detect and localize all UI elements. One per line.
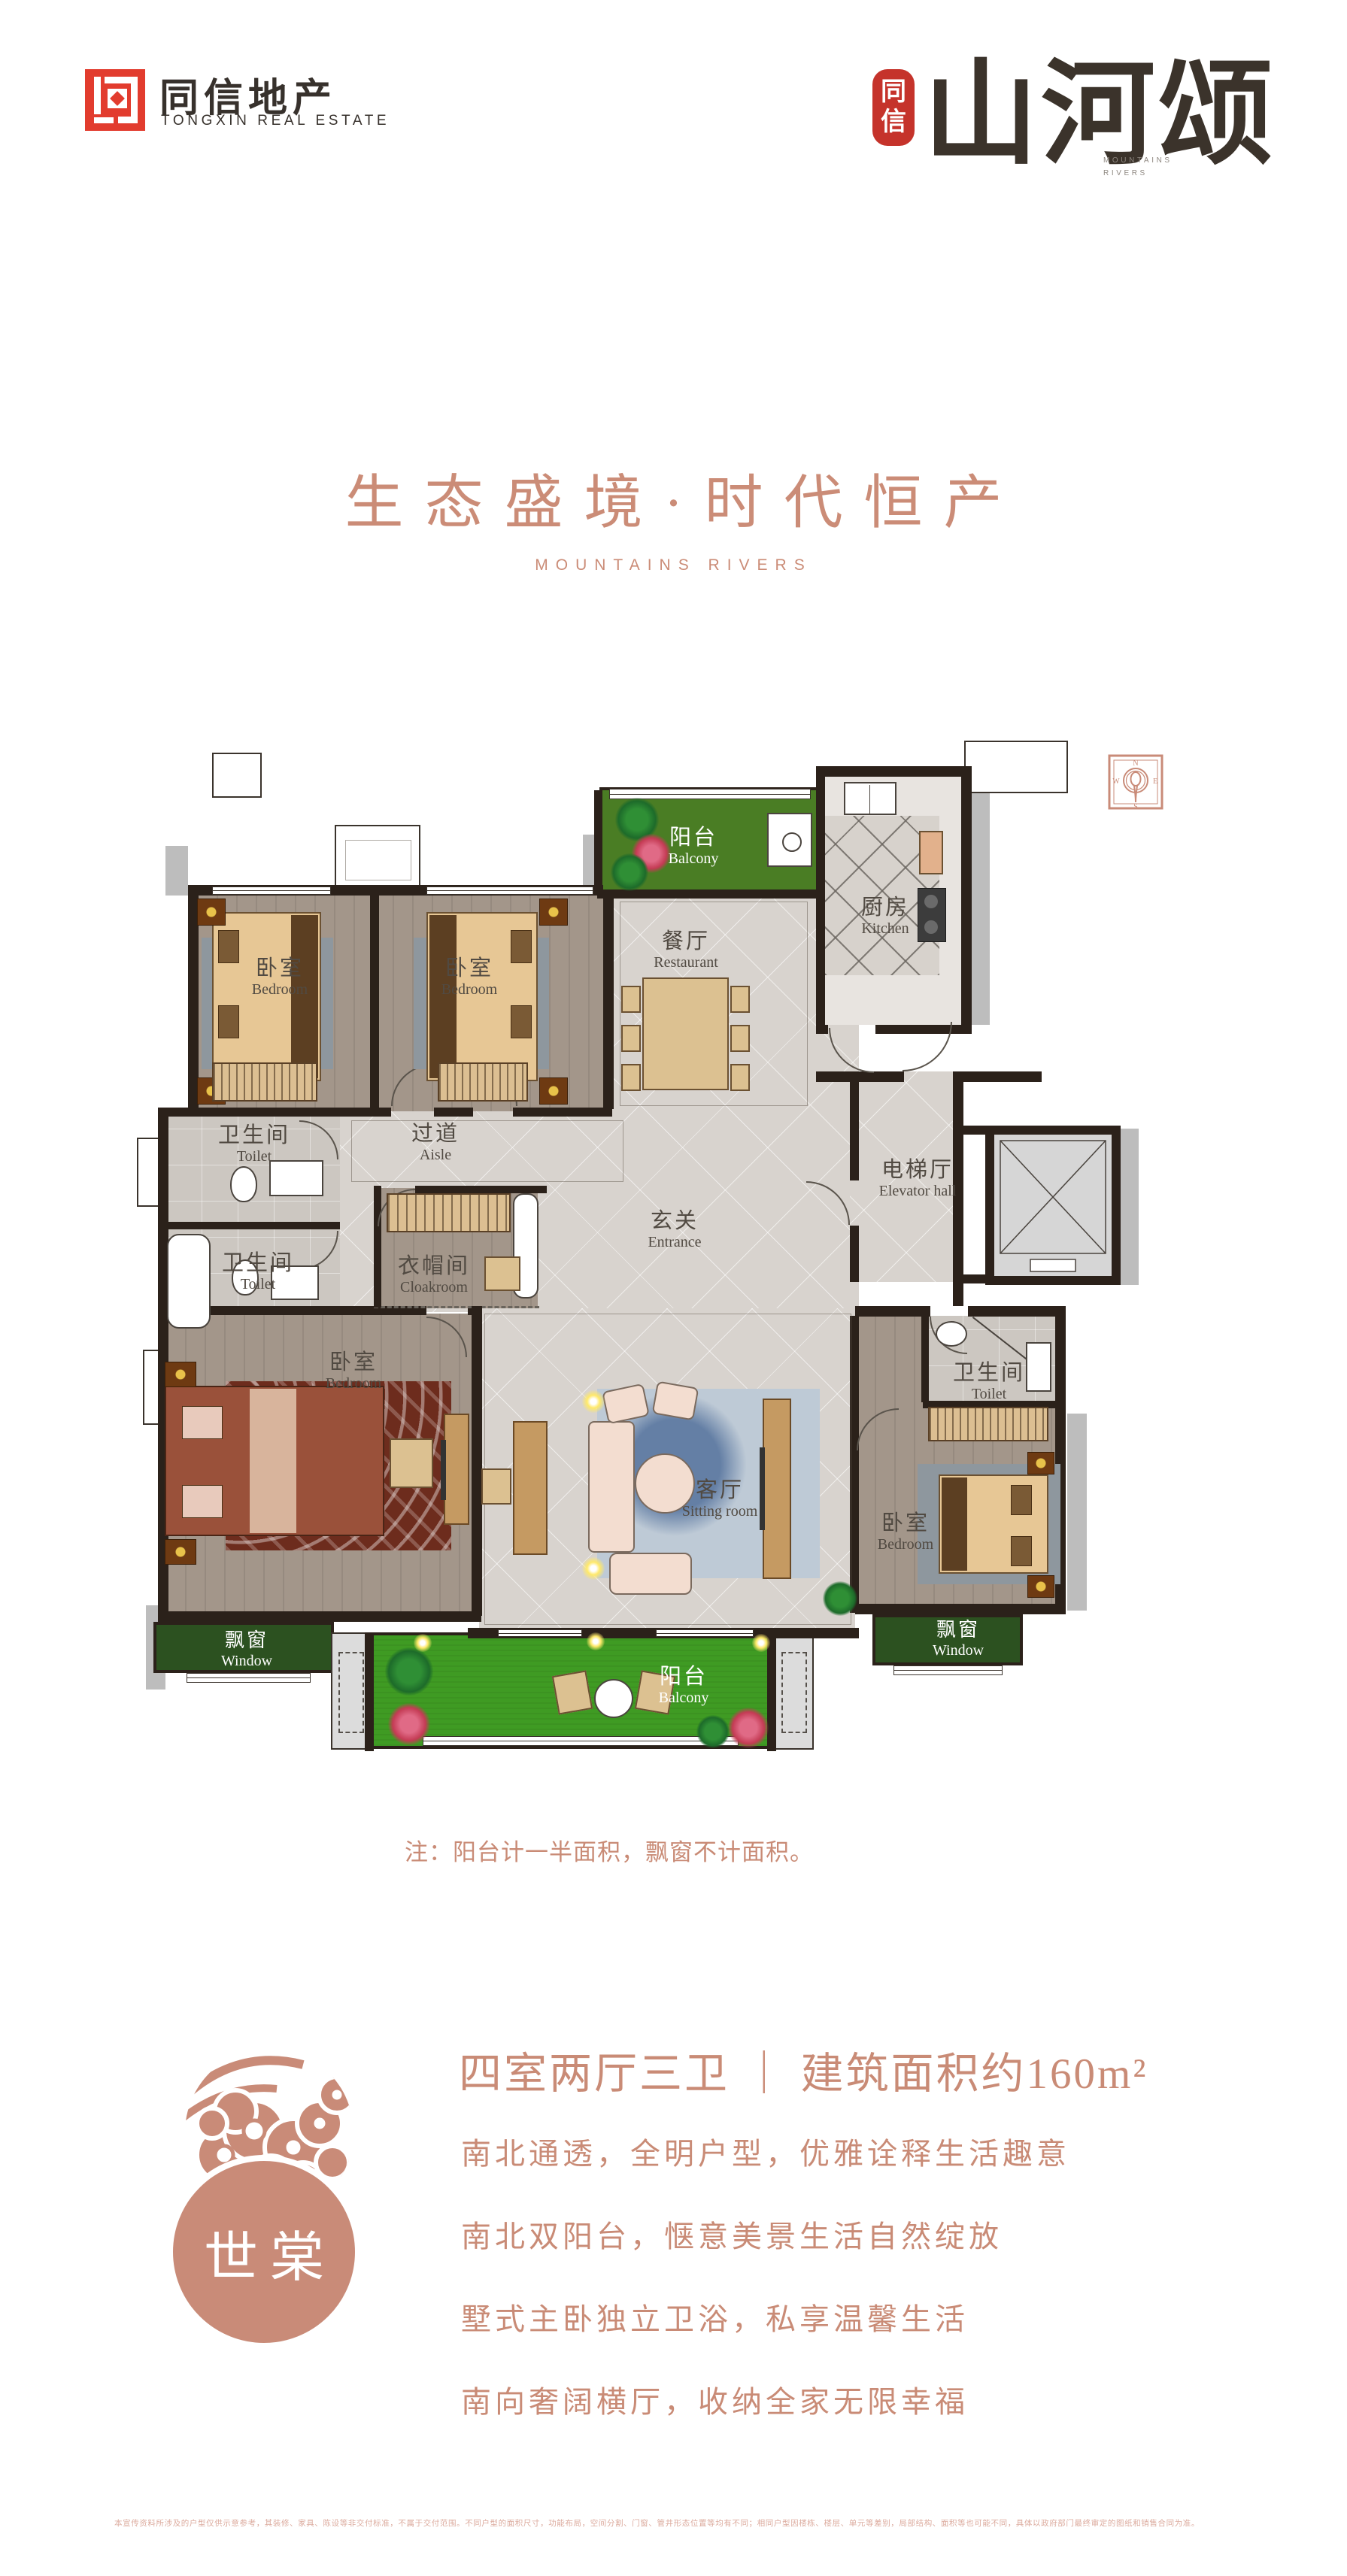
nightstand — [1027, 1452, 1054, 1474]
pillow — [182, 1485, 223, 1518]
feature-line: 墅式主卧独立卫浴，私享温馨生活 — [461, 2295, 1070, 2338]
plan-note: 注：阳台计一半面积，飘窗不计面积。 — [308, 1833, 910, 1867]
label-window-left: 飘窗 Window — [171, 1629, 322, 1670]
armchair — [652, 1380, 699, 1420]
tongxin-logo-icon — [85, 69, 145, 131]
project-calligraphy-logo: 山河颂 — [924, 21, 1276, 186]
wall — [594, 790, 602, 896]
wall-shadow — [1119, 1129, 1139, 1285]
toilet-bowl — [936, 1321, 967, 1347]
wall — [434, 1108, 473, 1117]
unit-features: 南北通透，全明户型，优雅诠释生活趣意 南北双阳台，惬意美景生活自然绽放 墅式主卧… — [461, 2129, 1070, 2460]
balcony-light — [587, 1632, 605, 1650]
label-toilet-2: 卫生间 Toilet — [183, 1250, 333, 1294]
label-toilet-1: 卫生间 Toilet — [179, 1123, 329, 1166]
wall — [472, 1306, 482, 1616]
wall — [968, 1306, 1066, 1317]
wall-shadow — [165, 846, 188, 896]
ac-platform — [772, 1632, 814, 1750]
bedroom-armchair — [390, 1438, 433, 1488]
disclaimer-text: 本宣传资料所涉及的户型仅供示意参考，其装修、家具、陈设等非交付标准，不属于交付范… — [114, 2517, 1200, 2529]
wall-shadow — [970, 772, 990, 1025]
svg-text:W: W — [1112, 777, 1120, 786]
chair — [621, 1064, 641, 1091]
nightstand — [539, 1077, 568, 1105]
brand-name-en: TONGXIN REAL ESTATE — [161, 113, 390, 129]
pillow — [1011, 1485, 1032, 1515]
cloak-rack — [387, 1193, 511, 1232]
pillow — [218, 1005, 239, 1038]
label-cloakroom: 衣帽间 Cloakroom — [359, 1253, 509, 1297]
stair-landing — [964, 741, 1068, 793]
poster-page: 同信地产 TONGXIN REAL ESTATE 同 信 山河颂 MOUNTAI… — [0, 0, 1347, 2576]
window-strip — [212, 886, 331, 895]
plant — [385, 1647, 433, 1696]
window-strip — [656, 1629, 754, 1637]
tv-console — [444, 1414, 469, 1525]
label-window-right: 飘窗 Window — [883, 1619, 1033, 1659]
pillow — [1011, 1536, 1032, 1566]
floor-lamp — [582, 1557, 605, 1580]
wall — [816, 766, 970, 777]
tv-screen — [441, 1440, 446, 1500]
page-subtitle: MOUNTAINS RIVERS — [0, 556, 1347, 574]
nightstand — [1027, 1575, 1054, 1598]
feature-line: 南北双阳台，惬意美景生活自然绽放 — [461, 2212, 1070, 2256]
desk-chair — [481, 1468, 511, 1505]
cutting-board — [919, 831, 943, 874]
window-strip — [498, 1629, 582, 1637]
nightstand — [165, 1539, 196, 1565]
dining-table — [642, 977, 729, 1090]
label-bedroom-1: 卧室 Bedroom — [205, 956, 355, 999]
project-logo-subtitle-line2: RIVERS — [1103, 167, 1173, 180]
elevator-shaft — [985, 1126, 1121, 1285]
label-entrance: 玄关 Entrance — [599, 1208, 750, 1252]
toilet-bowl — [230, 1166, 257, 1202]
unit-name-badge: 世棠 — [167, 2155, 361, 2349]
window-strip — [426, 886, 593, 895]
wall — [963, 1126, 986, 1135]
chair — [621, 1025, 641, 1052]
chair — [730, 986, 750, 1013]
label-balcony-bottom: 阳台 Balcony — [608, 1664, 759, 1708]
wardrobe — [928, 1407, 1048, 1441]
exterior-box — [212, 753, 262, 798]
wall — [816, 1071, 904, 1082]
wall — [855, 1306, 930, 1317]
label-sitting-room: 客厅 Sitting room — [645, 1477, 795, 1521]
wall — [188, 1108, 391, 1117]
nightstand — [165, 1362, 196, 1387]
window-strip — [187, 1673, 311, 1683]
svg-text:N: N — [1133, 759, 1138, 768]
label-kitchen: 厨房 Kitchen — [810, 895, 960, 938]
console-desk — [513, 1421, 548, 1555]
svg-text:E: E — [1153, 777, 1157, 786]
label-aisle: 过道 Aisle — [360, 1121, 511, 1165]
nightstand — [197, 899, 226, 926]
seal-char-bottom: 信 — [881, 108, 906, 138]
bay-window-frame — [345, 840, 411, 880]
washer-drum — [782, 832, 802, 852]
feature-line: 南向奢阔横厅，收纳全家无限幸福 — [461, 2377, 1070, 2421]
flower-plant — [728, 1708, 769, 1748]
wall — [767, 1632, 776, 1751]
wall — [953, 1071, 1042, 1082]
sink-divider — [869, 785, 870, 814]
label-bedroom-3: 卧室 Bedroom — [830, 1511, 981, 1554]
compass-icon: N E S W — [1107, 753, 1164, 811]
plant — [696, 1715, 730, 1748]
chair — [621, 986, 641, 1013]
floor-plan: 阳台 Balcony 厨房 Kitchen 餐厅 Restaurant 卧室 B… — [137, 741, 1220, 1772]
wardrobe — [438, 1062, 528, 1102]
sofa — [588, 1421, 635, 1553]
project-logo-subtitle: MOUNTAINS RIVERS — [1103, 154, 1173, 180]
wall — [415, 1186, 547, 1193]
flower-plant — [388, 1703, 430, 1745]
label-toilet-3: 卫生间 Toilet — [914, 1360, 1064, 1404]
pillow — [182, 1406, 223, 1439]
label-restaurant: 餐厅 Restaurant — [611, 929, 761, 972]
ac-unit — [338, 1652, 364, 1733]
unit-headline: 四室两厅三卫 ｜ 建筑面积约160m² — [459, 2039, 1148, 2101]
wardrobe — [212, 1062, 317, 1102]
balcony-light — [752, 1634, 770, 1652]
wall — [603, 889, 614, 1109]
svg-text:S: S — [1133, 803, 1138, 811]
window-strip — [423, 1736, 739, 1746]
balcony-light — [414, 1634, 432, 1652]
storage-dashed-line — [374, 1306, 539, 1308]
label-master-bedroom: 卧室 Bedroom — [278, 1350, 429, 1393]
kitchen-sink — [844, 782, 896, 815]
bed-runner — [250, 1389, 296, 1533]
brand-seal: 同 信 — [872, 69, 915, 146]
floor-lamp — [582, 1390, 605, 1413]
label-balcony-top: 阳台 Balcony — [618, 825, 769, 868]
wall — [961, 766, 972, 1034]
plant — [823, 1581, 857, 1616]
wall — [850, 1226, 859, 1282]
chair — [730, 1064, 750, 1091]
page-title: 生态盛境·时代恒产 — [0, 456, 1347, 540]
wall — [963, 1274, 986, 1283]
washing-machine — [767, 813, 812, 867]
ac-unit — [781, 1652, 807, 1733]
loveseat — [609, 1553, 692, 1595]
wall — [855, 1604, 1066, 1614]
pillow — [511, 1005, 532, 1038]
seal-char-top: 同 — [881, 77, 906, 108]
label-bedroom-2: 卧室 Bedroom — [394, 956, 545, 999]
wall — [158, 1611, 481, 1622]
project-logo-subtitle-line1: MOUNTAINS — [1103, 154, 1173, 167]
wall — [370, 895, 379, 1109]
balcony-chair — [552, 1670, 593, 1714]
entry-door-arc — [903, 1022, 952, 1071]
wall — [365, 1632, 374, 1751]
nightstand — [539, 899, 568, 926]
wall — [513, 1108, 612, 1117]
wall-shadow — [1067, 1414, 1087, 1611]
chair — [730, 1025, 750, 1052]
wall — [158, 1222, 340, 1229]
window-strip — [893, 1665, 1003, 1675]
feature-line: 南北通透，全明户型，优雅诠释生活趣意 — [461, 2129, 1070, 2173]
label-elevator-hall: 电梯厅 Elevator hall — [842, 1157, 993, 1201]
